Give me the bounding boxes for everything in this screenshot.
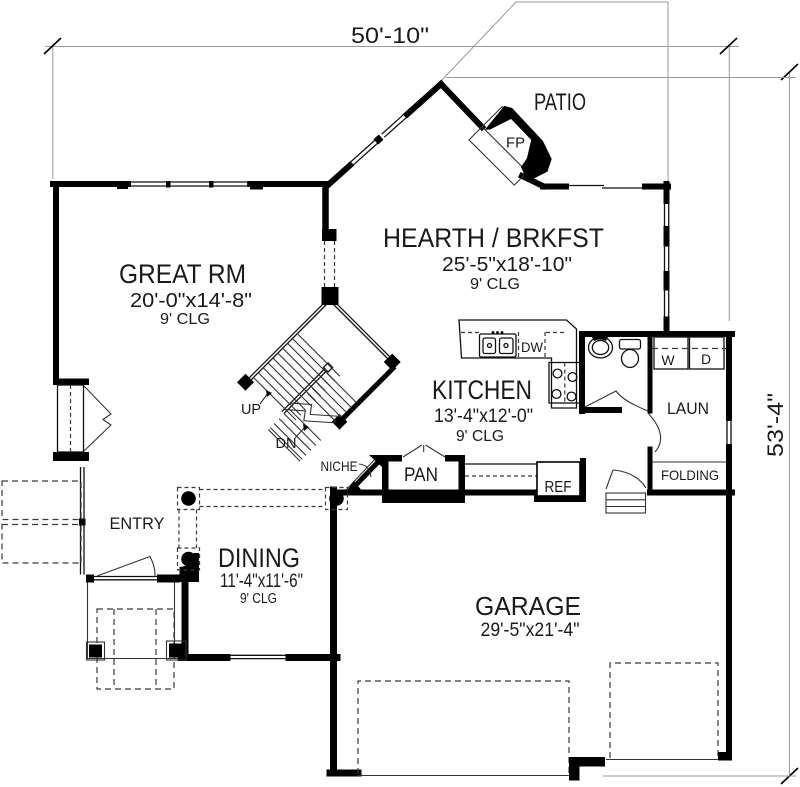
svg-text:D: D xyxy=(701,351,711,367)
svg-text:HEARTH / BRKFST: HEARTH / BRKFST xyxy=(383,223,604,253)
svg-text:LAUN: LAUN xyxy=(667,399,709,418)
svg-text:11'-4"x11'-6": 11'-4"x11'-6" xyxy=(220,571,303,592)
svg-text:9' CLG: 9' CLG xyxy=(160,311,210,328)
svg-text:REF: REF xyxy=(545,479,572,496)
svg-text:FOLDING: FOLDING xyxy=(661,467,719,483)
svg-text:GREAT RM: GREAT RM xyxy=(119,259,246,289)
svg-text:20'-0"x14'-8": 20'-0"x14'-8" xyxy=(130,290,252,312)
svg-text:UP: UP xyxy=(241,401,261,418)
svg-text:50'-10": 50'-10" xyxy=(351,23,429,48)
svg-text:9' CLG: 9' CLG xyxy=(456,428,504,445)
svg-text:FP: FP xyxy=(506,135,525,152)
svg-text:DN: DN xyxy=(276,435,297,452)
svg-text:NICHE: NICHE xyxy=(321,458,358,474)
svg-text:9' CLG: 9' CLG xyxy=(470,276,520,293)
svg-text:KITCHEN: KITCHEN xyxy=(432,375,532,405)
svg-text:W: W xyxy=(661,352,675,368)
svg-text:9' CLG: 9' CLG xyxy=(240,590,277,607)
svg-text:29'-5"x21'-4": 29'-5"x21'-4" xyxy=(481,620,580,641)
svg-text:13'-4"x12'-0": 13'-4"x12'-0" xyxy=(434,406,533,427)
svg-text:PATIO: PATIO xyxy=(534,89,586,116)
svg-text:PAN: PAN xyxy=(404,465,438,486)
svg-text:GARAGE: GARAGE xyxy=(475,591,581,621)
svg-text:25'-5"x18'-10": 25'-5"x18'-10" xyxy=(442,254,572,276)
svg-text:53'-4": 53'-4" xyxy=(763,393,788,457)
svg-text:DINING: DINING xyxy=(218,543,300,573)
svg-text:DW: DW xyxy=(521,339,544,355)
svg-text:ENTRY: ENTRY xyxy=(110,514,165,533)
